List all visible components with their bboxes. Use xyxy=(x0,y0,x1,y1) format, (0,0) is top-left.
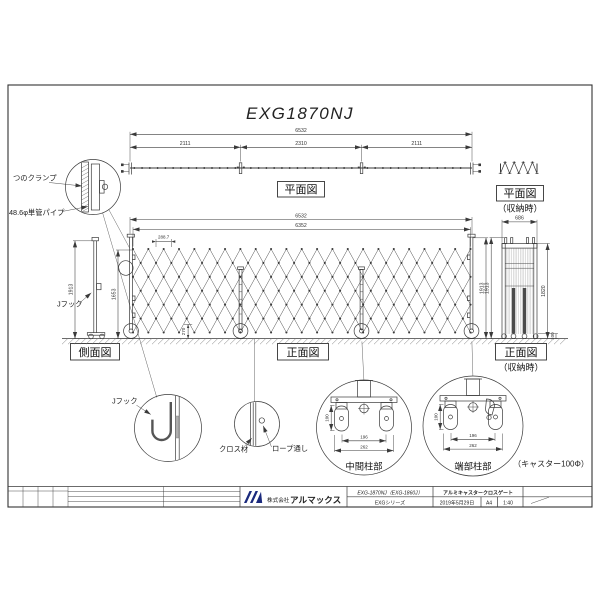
plan-stored-sub: （収納時） xyxy=(497,203,542,214)
jhook-detail-callout: Jフック xyxy=(112,397,138,406)
front-stored-label: 正面図 xyxy=(505,346,538,359)
dim-stored-width: 686 xyxy=(515,216,524,222)
dim-stored-h2: 1820 xyxy=(541,285,547,297)
company-prefix: 株式会社 xyxy=(267,496,290,504)
dim-plan-seg3: 2111 xyxy=(411,141,422,147)
clamp-callout: つのクランプ xyxy=(13,174,57,183)
dim-stored-h1: 1913 xyxy=(485,282,491,294)
dim-front-inner: 6352 xyxy=(295,223,307,229)
rope-pass-callout: ロープ通し xyxy=(272,444,308,453)
dim-end-outer: 262 xyxy=(469,443,477,448)
dim-front-bottom: 270 xyxy=(181,327,186,335)
product-name: アルミキャスタークロスゲート xyxy=(443,490,513,497)
dim-front-total: 6532 xyxy=(295,213,307,219)
plan-stored-label: 平面図 xyxy=(504,187,537,200)
dim-side-height: 1913 xyxy=(69,284,75,296)
dim-plan-seg2: 2310 xyxy=(295,141,307,147)
dim-mid-wheel: 100 xyxy=(324,414,329,422)
dim-front-pitch: 288.7 xyxy=(158,235,170,240)
company-name: アルマックス xyxy=(290,495,341,505)
dim-plan-total: 6532 xyxy=(295,128,307,134)
plan-view-label: 平面図 xyxy=(285,183,318,196)
side-view-label: 側面図 xyxy=(79,346,112,359)
pipe-callout: 48.6φ単管パイプ xyxy=(9,208,65,217)
dim-front-panel-h: 1653 xyxy=(112,288,118,300)
dim-end-wheel: 100 xyxy=(433,413,438,421)
dim-end-inner: 196 xyxy=(469,433,477,438)
cad-drawing: EXG1870NJ 6532 2111 2310 2111 平面図 平面図 （収… xyxy=(0,0,600,600)
caster-note: （キャスター100Φ） xyxy=(513,460,589,469)
end-post-label: 端部柱部 xyxy=(454,461,491,472)
drawing-sheet: EXG1870NJ 6532 2111 2310 2111 平面図 平面図 （収… xyxy=(0,0,600,600)
page-title: EXG1870NJ xyxy=(246,104,354,123)
dim-mid-outer: 262 xyxy=(360,444,368,449)
paper-size: A4 xyxy=(486,500,492,506)
model-number: EXG-1870NJ（EXG-1860J） xyxy=(357,490,422,497)
mid-post-label: 中間柱部 xyxy=(345,461,382,472)
cross-member-callout: クロス材 xyxy=(219,445,248,454)
front-stored-sub: （収納時） xyxy=(498,362,543,373)
drawing-date: 2019年5月29日 xyxy=(440,499,474,506)
jhook-side-callout: Jフック xyxy=(57,300,83,309)
series-name: EXGシリーズ xyxy=(375,499,405,506)
dim-plan-seg1: 2111 xyxy=(180,141,191,147)
drawing-scale: 1:40 xyxy=(503,500,513,506)
dim-stored-caster: 100 xyxy=(550,332,555,340)
front-view-label: 正面図 xyxy=(287,346,320,359)
dim-mid-inner: 196 xyxy=(360,435,368,440)
